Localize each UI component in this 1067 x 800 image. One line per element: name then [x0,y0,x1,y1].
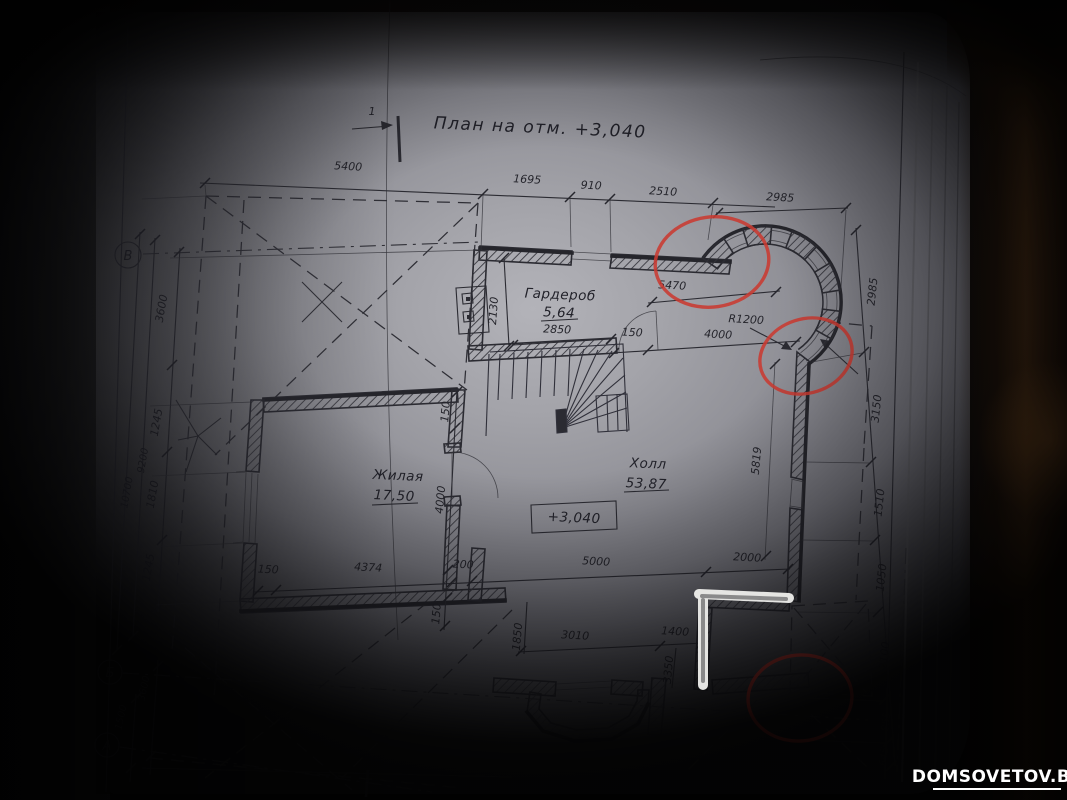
white-marker-correction [699,594,789,685]
watermark-text: DOMSOVETOV.BY [912,767,1067,787]
photo-overlays: DOMSOVETOV.BY [0,0,1067,800]
watermark: DOMSOVETOV.BY [912,767,1067,789]
photo-of-floor-plan: План на отм. +3,040 1 В Б А [0,0,1067,800]
